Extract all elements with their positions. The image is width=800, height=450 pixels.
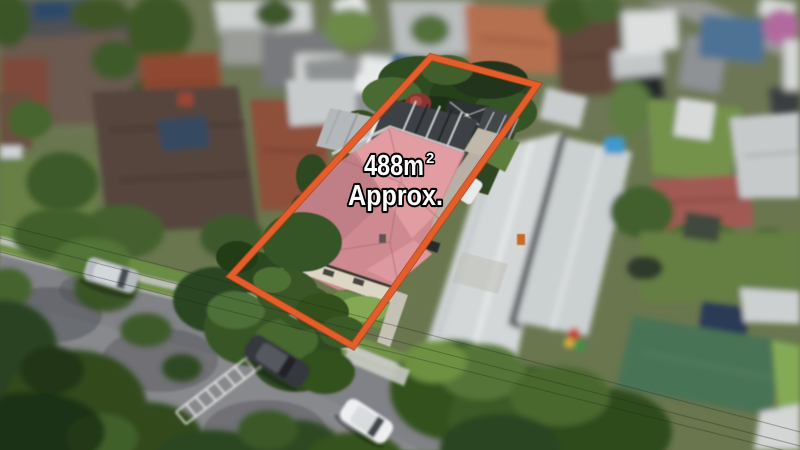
- svg-text:488m: 488m: [364, 150, 424, 182]
- svg-text:2: 2: [426, 150, 434, 167]
- svg-text:Approx.: Approx.: [348, 180, 443, 212]
